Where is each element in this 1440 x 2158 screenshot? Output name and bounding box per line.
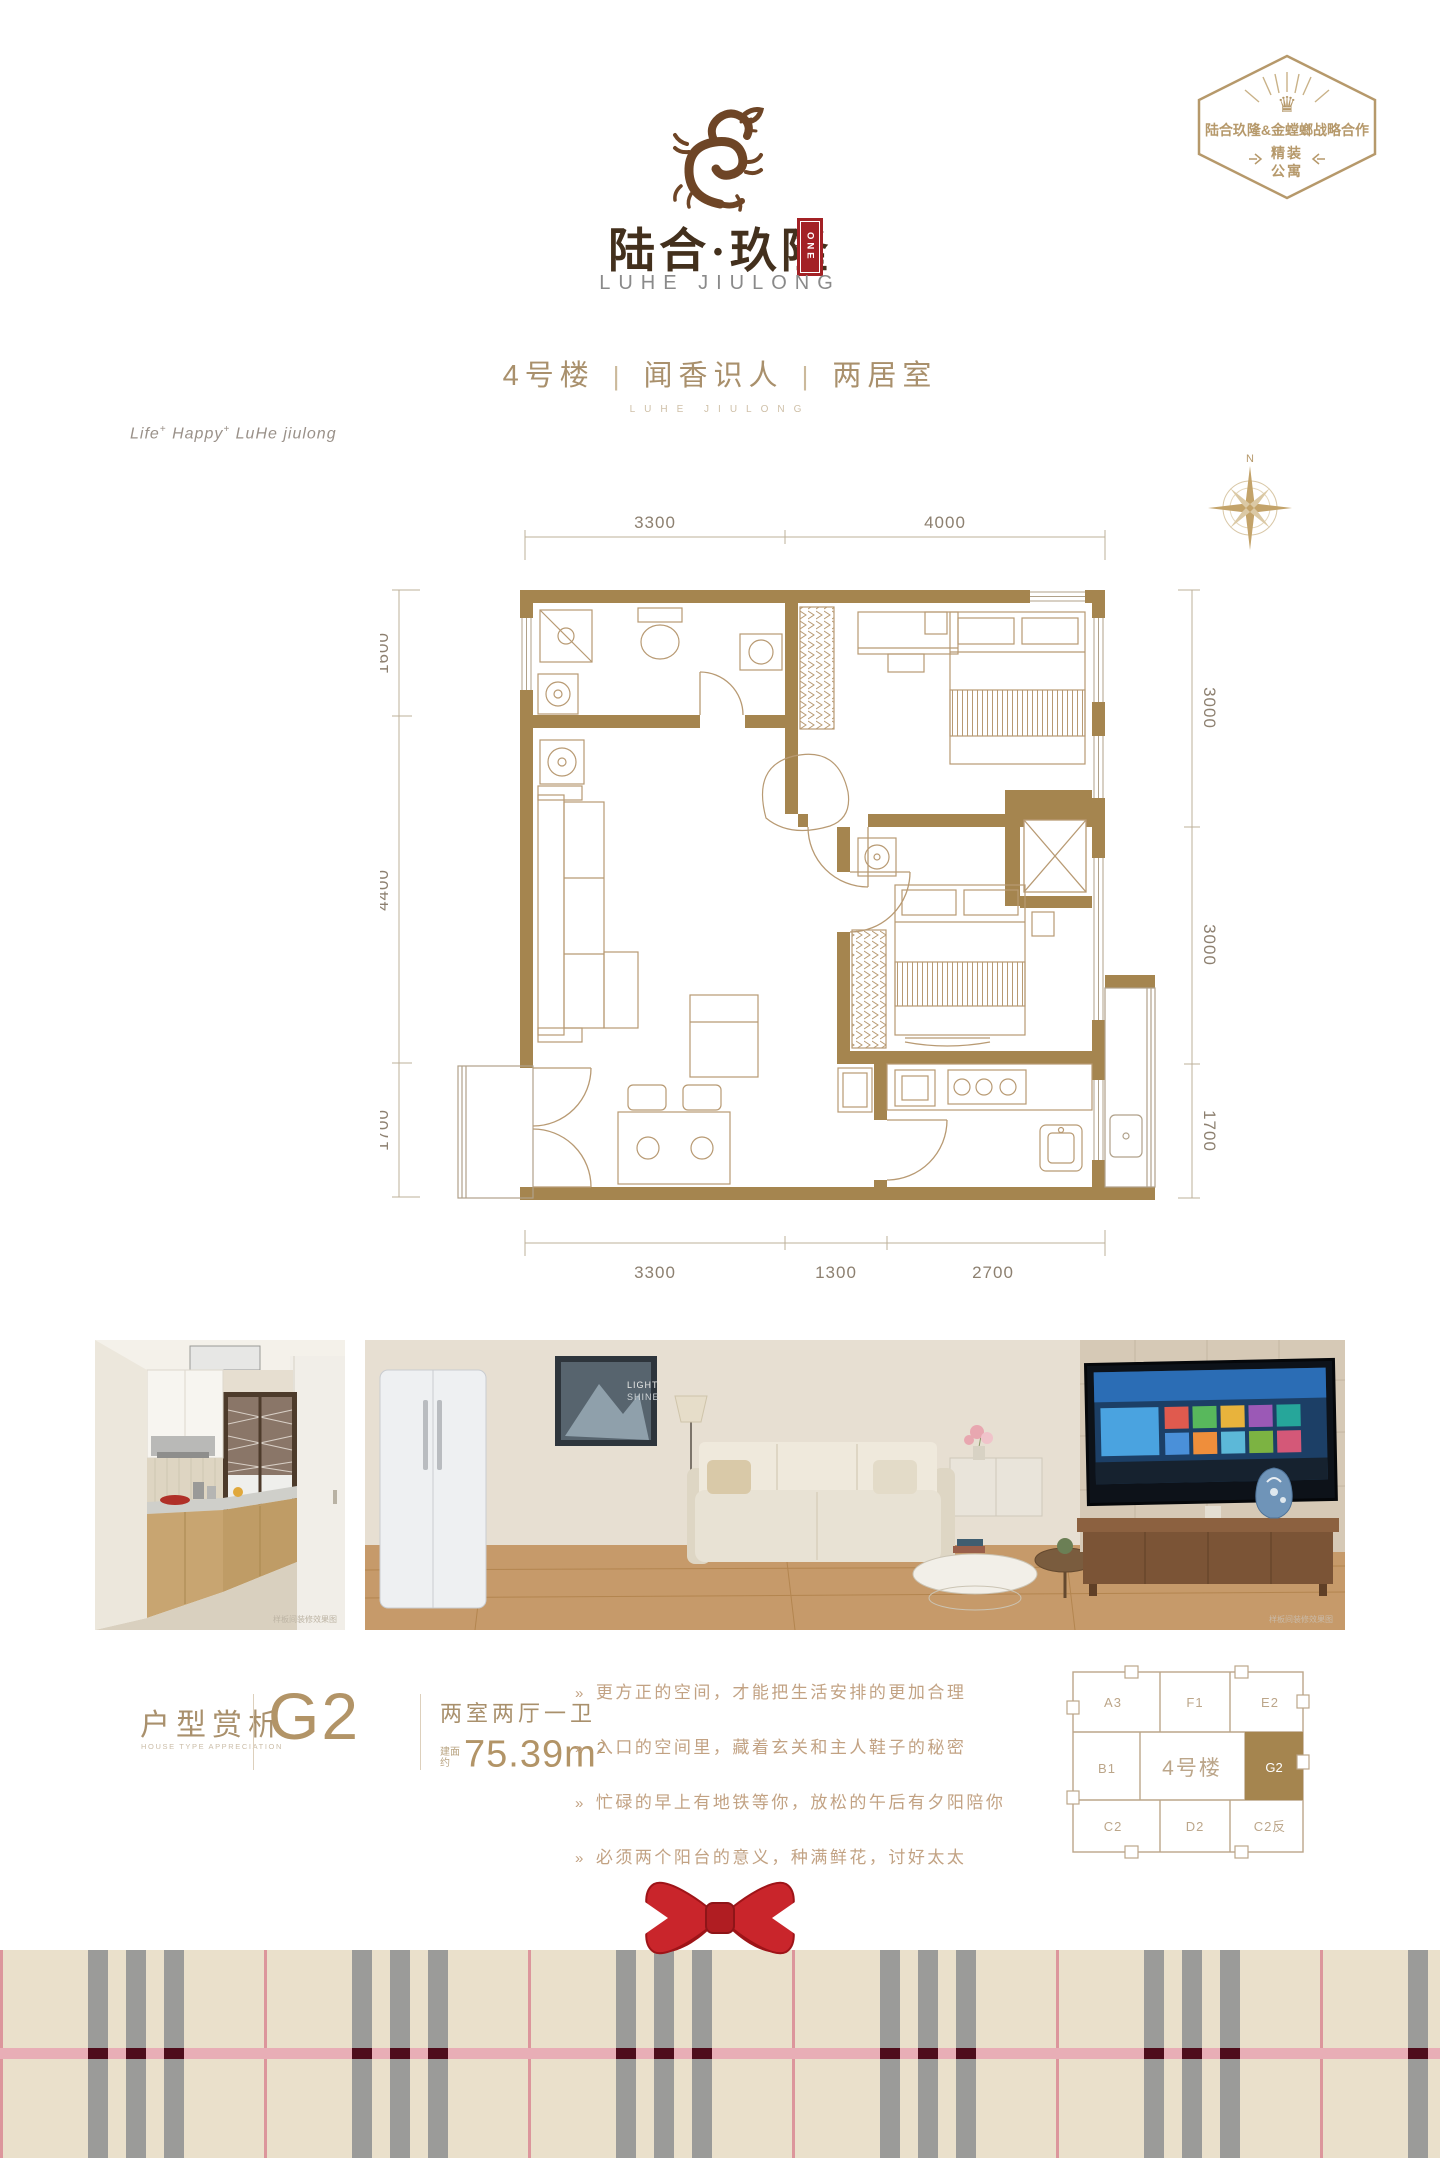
artwork-text-1: LIGHT [627,1380,659,1390]
tv-icon [1085,1359,1336,1504]
keyplan-unit-g2: G2 [1265,1760,1282,1775]
section-title-cn: 户型赏析 [140,1700,284,1744]
selling-point: »更方正的空间，才能把生活安排的更加合理 [575,1678,966,1703]
subtitle-divider: | [784,361,833,391]
bullet-marker-icon: » [575,1795,586,1812]
svg-text:1600: 1600 [380,632,392,674]
bullet-marker-icon: » [575,1740,586,1757]
compass-icon: N [1208,453,1292,550]
tagline: Life+ Happy+ LuHe jiulong [130,424,337,443]
keyplan-unit: F1 [1186,1695,1203,1710]
keyplan-unit: C2 [1104,1819,1123,1834]
brand-one-seal: ONE [797,218,823,276]
partnership-badge: ♛ 陆合玖隆&金螳螂战略合作 精装 公寓 [1185,50,1395,205]
badge-crown-icon: ♛ [1277,92,1297,117]
building-key-plan: A3 F1 E2 B1 4号楼 G2 C2 D2 C2反 [1065,1635,1315,1860]
brand-name-cn: 陆合·玖隆 [0,212,1440,281]
east-balcony [1105,988,1155,1187]
unit-code: G2 [268,1678,360,1754]
keyplan-unit: B1 [1098,1761,1116,1776]
photo-watermark: 样板间装修效果图 [1269,1614,1333,1624]
badge-partnership-text: 陆合玖隆&金螳螂战略合作 [1205,122,1369,138]
svg-text:4000: 4000 [924,513,966,532]
floor-plan: N [380,440,1300,1320]
svg-text:4400: 4400 [380,869,392,911]
keyplan-unit: C2反 [1254,1819,1287,1834]
svg-text:1300: 1300 [815,1263,857,1282]
brand-name-en: LUHE JIULONG [0,272,1440,295]
selling-point: »忙碌的早上有地铁等你，放松的午后有夕阳陪你 [575,1788,1005,1813]
svg-text:3300: 3300 [634,1263,676,1282]
badge-tag-bottom: 公寓 [1271,163,1303,179]
area-prefix: 建面 约 [440,1747,460,1774]
svg-text:1700: 1700 [380,1109,392,1151]
divider [420,1694,421,1770]
plaid-horizontal-band [0,2048,1440,2059]
svg-text:3000: 3000 [1200,687,1219,729]
keyplan-unit: E2 [1261,1695,1279,1710]
shaft-icon [1024,820,1086,892]
unit-layout: 两室两厅一卫 [440,1696,596,1728]
subtitle-en: LUHE JIULONG [0,404,1440,415]
svg-text:3000: 3000 [1200,924,1219,966]
photo-watermark: 样板间装修效果图 [273,1614,337,1624]
page-subtitle: 4号楼|闻香识人|两居室 [0,352,1440,394]
svg-text:1700: 1700 [1200,1110,1219,1152]
vase-icon [1256,1468,1292,1518]
keyplan-unit: A3 [1104,1695,1122,1710]
kitchen-photo: 样板间装修效果图 [95,1340,345,1630]
svg-text:2700: 2700 [972,1263,1014,1282]
subtitle-divider: | [595,361,644,391]
keyplan-unit: D2 [1186,1819,1205,1834]
subtitle-building: 4号楼 [503,360,595,392]
seal-text: ONE [805,232,816,262]
subtitle-rooms: 两居室 [832,360,937,392]
badge-tag-top: 精装 [1271,145,1303,161]
svg-text:3300: 3300 [634,513,676,532]
living-room-photo: LIGHT SHINE [365,1340,1345,1630]
west-balcony [458,1066,533,1198]
keyplan-building-label: 4号楼 [1162,1757,1222,1780]
subtitle-slogan: 闻香识人 [644,360,784,392]
artwork-text-2: SHINE [627,1392,660,1402]
bullet-marker-icon: » [575,1685,586,1702]
brochure-page: 陆合·玖隆 ONE LUHE JIULONG ♛ 陆合玖隆&金螳螂战略合作 精装… [0,0,1440,2158]
selling-point: »入口的空间里，藏着玄关和主人鞋子的秘密 [575,1733,966,1758]
divider [253,1694,254,1770]
section-title-en: HOUSE TYPE APPRECIATION [141,1742,283,1751]
compass-north-label: N [1246,453,1254,465]
bullet-marker-icon: » [575,1850,586,1867]
dragon-logo-icon [645,100,795,215]
bow-icon [632,1852,808,1988]
